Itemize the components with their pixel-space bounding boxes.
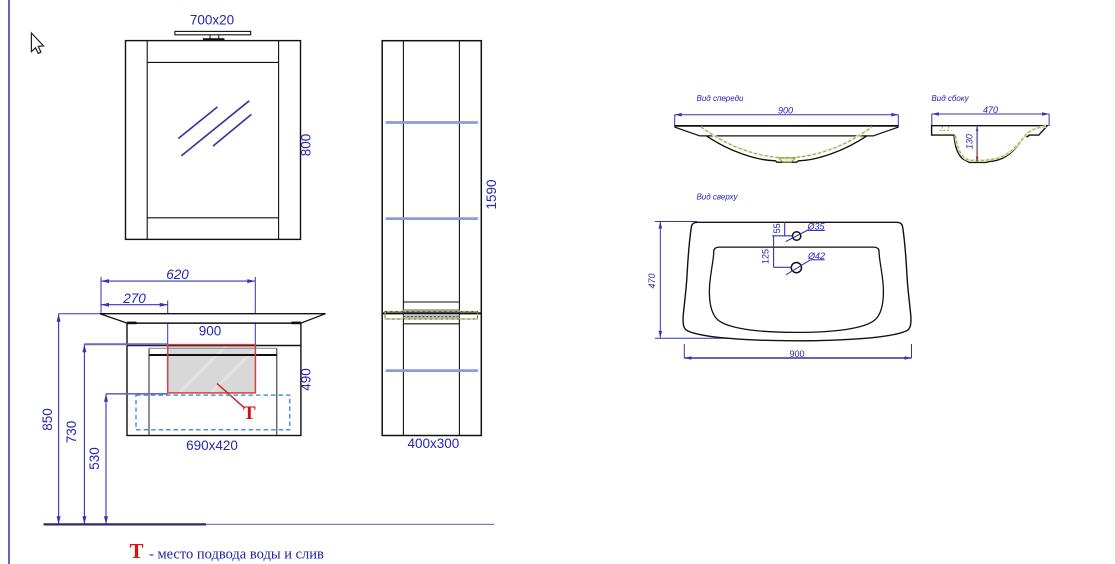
svg-text:900: 900 — [778, 105, 793, 115]
svg-text:470: 470 — [983, 105, 998, 115]
svg-text:Вид сверху: Вид сверху — [696, 193, 738, 202]
svg-text:730: 730 — [64, 421, 79, 444]
svg-text:Вид спереди: Вид спереди — [697, 94, 745, 103]
svg-text:T: T — [243, 403, 256, 424]
svg-text:Вид сбоку: Вид сбоку — [931, 94, 969, 103]
svg-text:270: 270 — [122, 291, 146, 306]
svg-text:- место подвода воды и слив: - место подвода воды и слив — [149, 547, 324, 563]
svg-text:700x20: 700x20 — [190, 13, 234, 28]
svg-text:850: 850 — [40, 408, 55, 431]
svg-text:530: 530 — [87, 447, 102, 470]
svg-text:470: 470 — [647, 273, 657, 288]
svg-text:Ø42: Ø42 — [807, 251, 825, 261]
svg-text:690x420: 690x420 — [186, 438, 238, 453]
svg-text:620: 620 — [166, 267, 189, 282]
svg-text:125: 125 — [761, 249, 771, 264]
svg-text:1590: 1590 — [484, 179, 499, 209]
svg-text:400x300: 400x300 — [407, 436, 459, 451]
svg-text:130: 130 — [964, 134, 974, 149]
svg-text:55: 55 — [772, 223, 782, 233]
svg-text:900: 900 — [199, 324, 222, 339]
svg-text:Ø35: Ø35 — [806, 221, 825, 231]
svg-text:900: 900 — [789, 349, 804, 359]
svg-text:T: T — [129, 539, 143, 563]
svg-text:490: 490 — [299, 368, 314, 391]
svg-text:800: 800 — [299, 134, 314, 157]
